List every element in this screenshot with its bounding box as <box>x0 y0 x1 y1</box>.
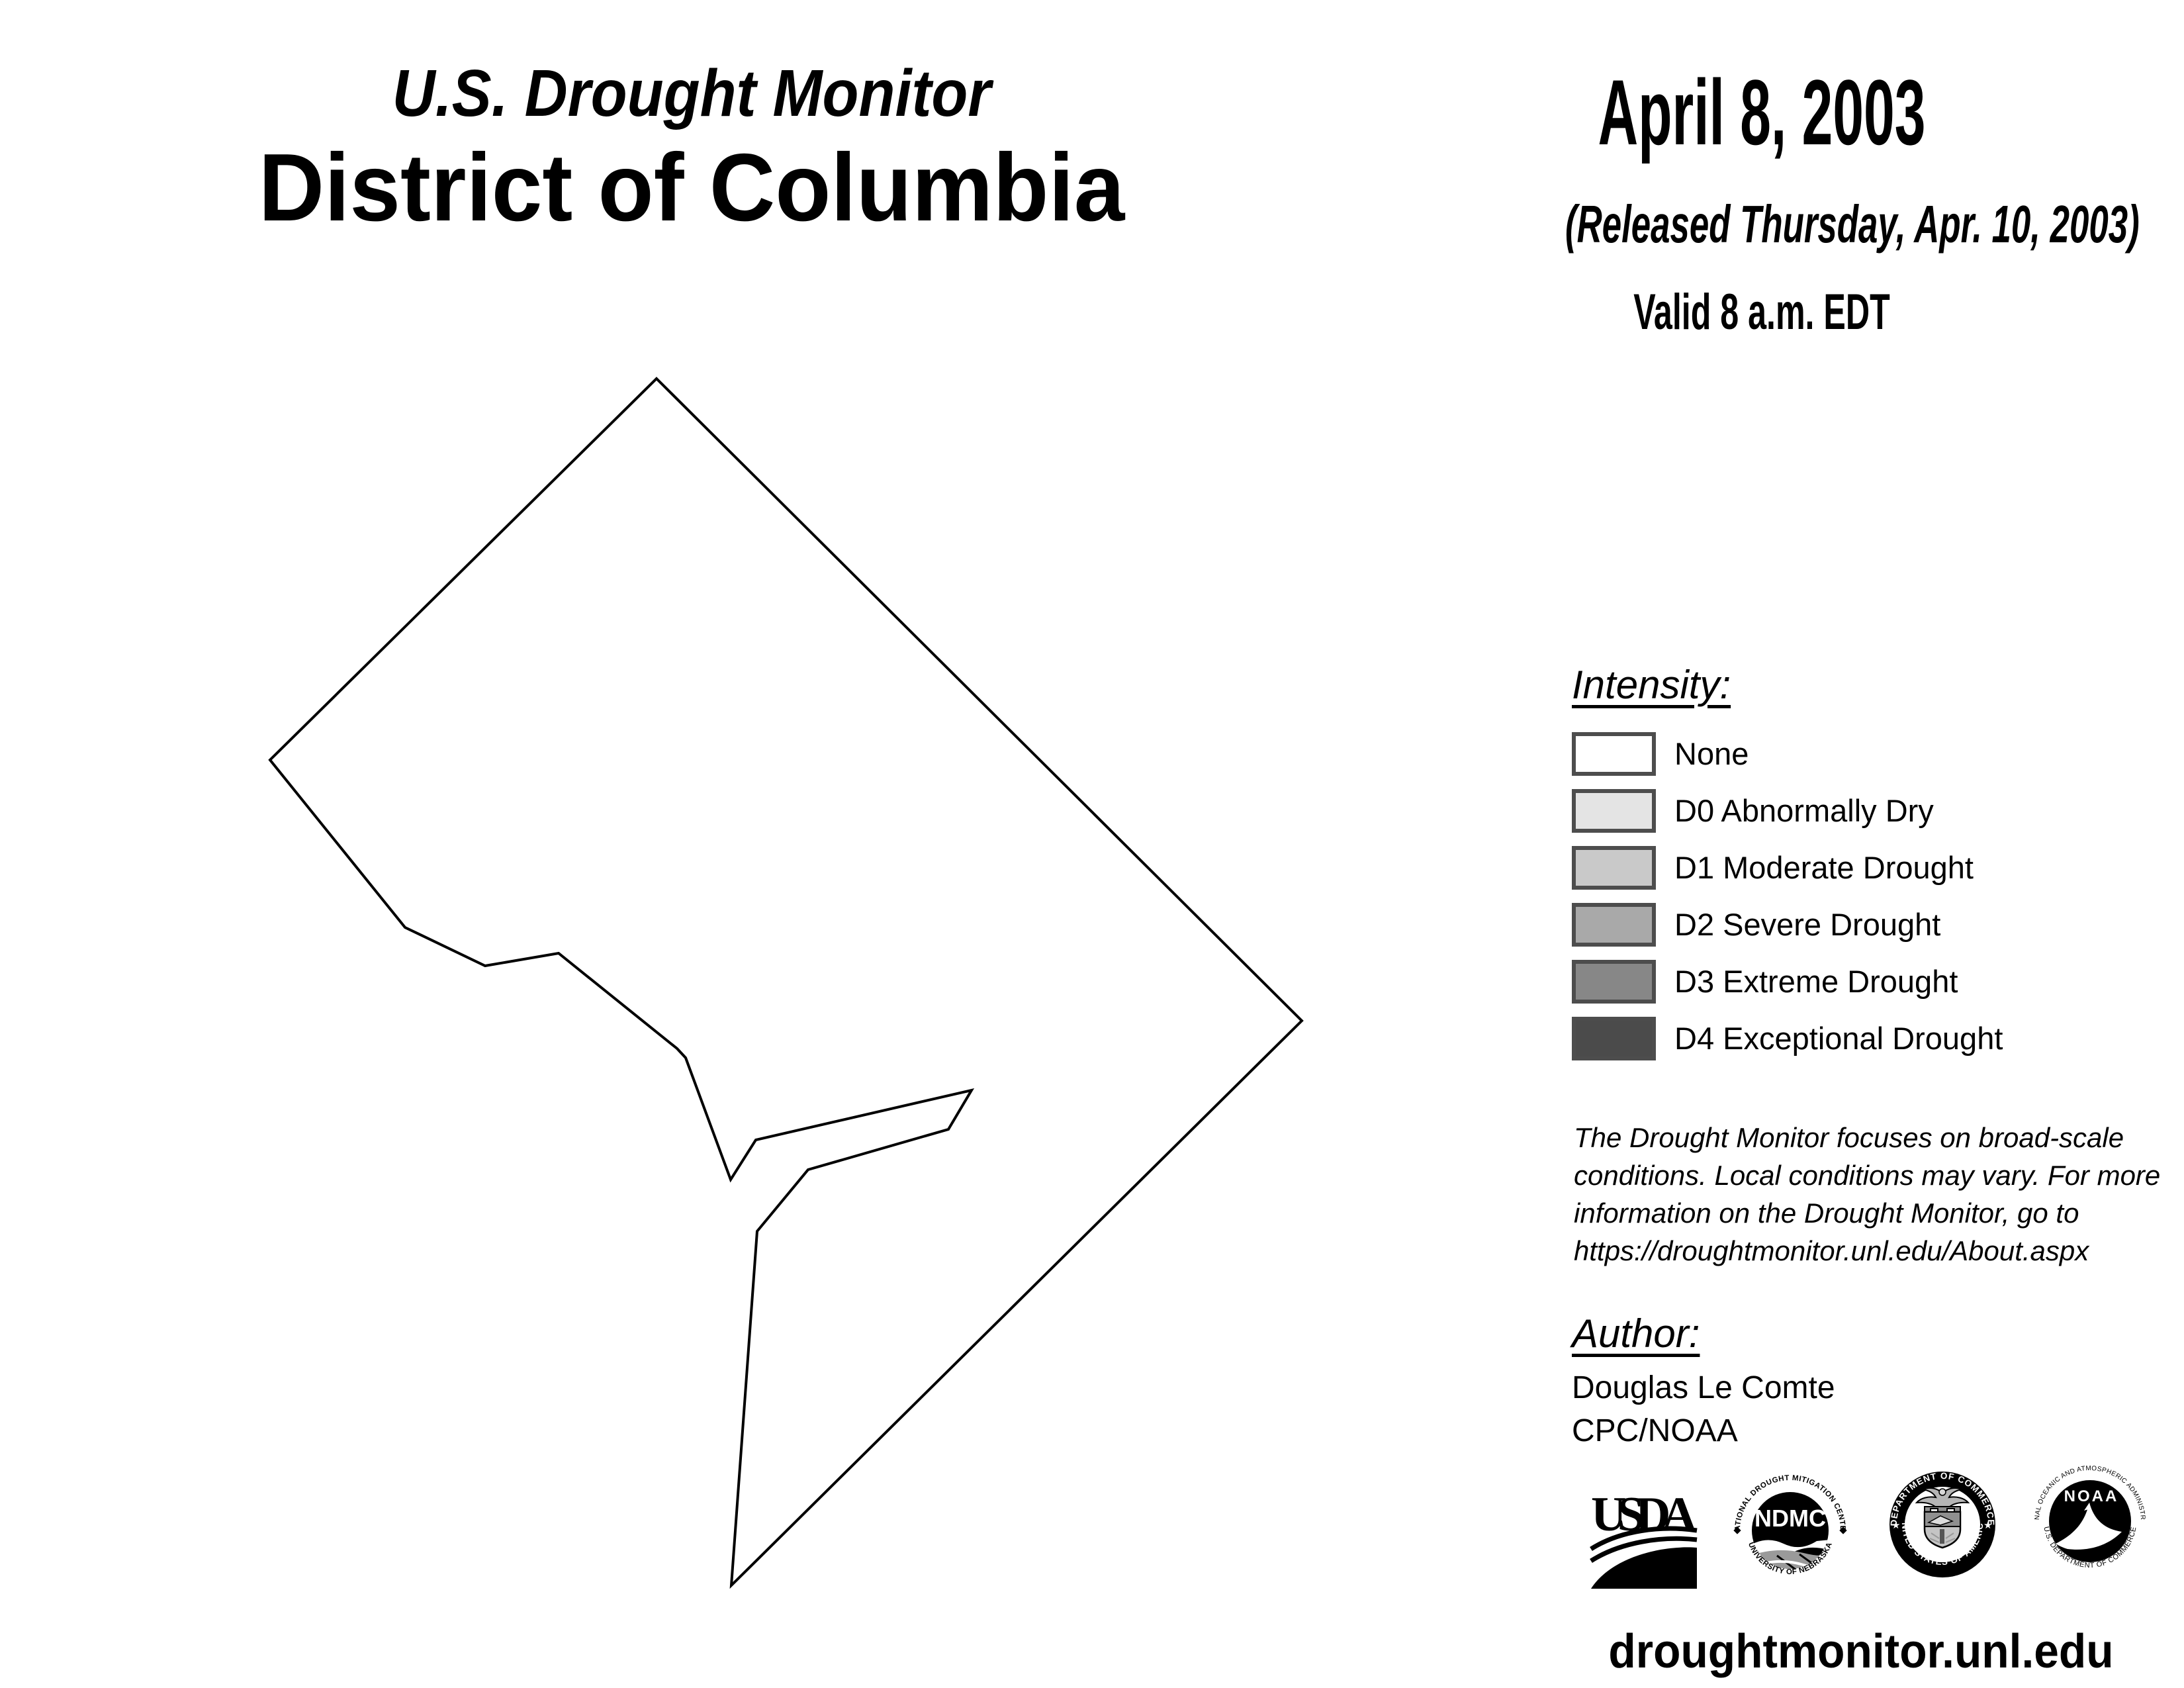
map-date: April 8, 2003 <box>1583 63 1940 162</box>
legend-swatch-d1 <box>1572 846 1656 890</box>
usda-logo-text: USDA <box>1591 1488 1697 1542</box>
legend-swatch-d4 <box>1572 1017 1656 1060</box>
legend-label: D4 Exceptional Drought <box>1674 1017 2003 1060</box>
legend-label: None <box>1674 732 1749 776</box>
commerce-seal-icon: DEPARTMENT OF COMMERCE UNITED STATES OF … <box>1888 1470 1997 1579</box>
date-block: April 8, 2003 (Released Thursday, Apr. 1… <box>1464 0 2060 340</box>
legend-swatch-none <box>1572 732 1656 776</box>
valid-time: Valid 8 a.m. EDT <box>1565 285 1958 340</box>
drought-monitor-page: U.S. Drought Monitor District of Columbi… <box>0 0 2184 1688</box>
author-heading: Author: <box>1572 1311 1700 1357</box>
dc-map <box>232 331 1357 1655</box>
program-title: U.S. Drought Monitor <box>245 56 1138 130</box>
page-title: District of Columbia <box>220 136 1163 239</box>
legend-label: D0 Abnormally Dry <box>1674 789 1934 833</box>
legend-title: Intensity: <box>1572 662 1731 708</box>
legend-swatch-d0 <box>1572 789 1656 833</box>
ndmc-center-text: NDMC <box>1754 1505 1826 1532</box>
legend-swatch-d2 <box>1572 903 1656 947</box>
doc-shield <box>1925 1507 1960 1548</box>
legend-label: D1 Moderate Drought <box>1674 846 1974 890</box>
noaa-center-text: NOAA <box>2064 1487 2119 1505</box>
ndmc-logo-icon: NATIONAL DROUGHT MITIGATION CENTER UNIVE… <box>1731 1471 1850 1590</box>
title-block: U.S. Drought Monitor District of Columbi… <box>195 0 1188 239</box>
legend-swatch-d3 <box>1572 960 1656 1004</box>
noaa-logo-icon: NATIONAL OCEANIC AND ATMOSPHERIC ADMINIS… <box>2033 1464 2147 1578</box>
usda-logo-icon: USDA <box>1587 1488 1701 1591</box>
doc-star-right: ★ <box>1983 1520 1992 1531</box>
release-date: (Released Thursday, Apr. 10, 2003) <box>1565 195 1958 254</box>
dc-boundary-outline <box>270 379 1302 1585</box>
legend-label: D3 Extreme Drought <box>1674 960 1958 1004</box>
disclaimer-text: The Drought Monitor focuses on broad-sca… <box>1574 1119 2184 1270</box>
author-name: Douglas Le Comte <box>1572 1369 1835 1407</box>
doc-star-left: ★ <box>1891 1520 1900 1531</box>
site-url: droughtmonitor.unl.edu <box>1606 1625 2116 1678</box>
legend-label: D2 Severe Drought <box>1674 903 1940 947</box>
author-org: CPC/NOAA <box>1572 1412 1738 1450</box>
